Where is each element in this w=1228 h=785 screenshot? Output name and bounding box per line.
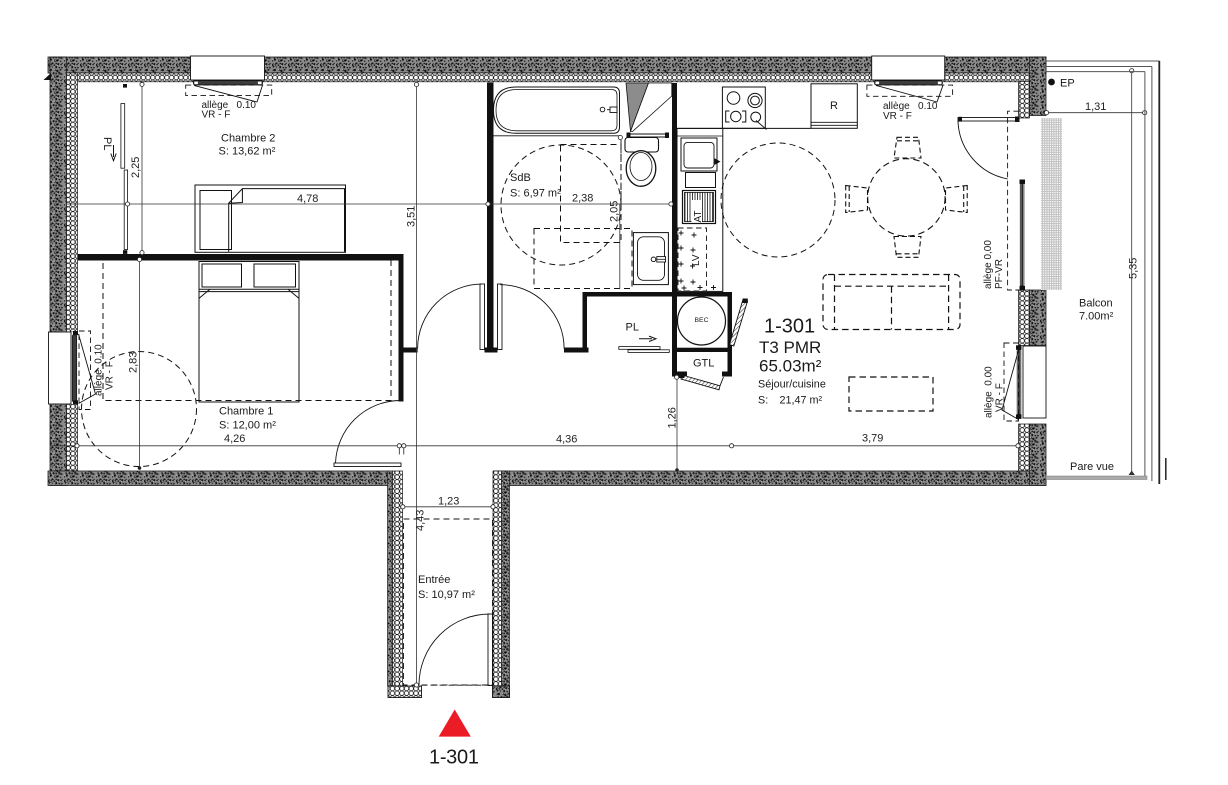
svg-text:2,25: 2,25 — [130, 157, 142, 178]
svg-text:Entrée: Entrée — [418, 574, 450, 586]
svg-text:3,51: 3,51 — [406, 206, 418, 227]
svg-text:1,23: 1,23 — [438, 496, 459, 508]
svg-text:5,35: 5,35 — [1128, 258, 1140, 279]
svg-text:PL: PL — [626, 322, 639, 334]
svg-text:allège 0.00: allège 0.00 — [984, 366, 995, 418]
svg-text:S: 6,97 m²: S: 6,97 m² — [510, 188, 561, 200]
svg-text:S:: S: — [758, 395, 768, 407]
svg-text:Balcon: Balcon — [1079, 298, 1113, 310]
svg-text:S: 10,97 m²: S: 10,97 m² — [418, 589, 475, 601]
svg-text:65.03m²: 65.03m² — [759, 357, 822, 376]
svg-text:VR - F: VR - F — [105, 361, 116, 390]
svg-text:2,05: 2,05 — [609, 201, 621, 222]
svg-text:S: 12,00 m²: S: 12,00 m² — [219, 420, 276, 432]
svg-text:AT: AT — [693, 210, 704, 222]
svg-text:R: R — [830, 100, 838, 112]
svg-text:1,26: 1,26 — [667, 407, 679, 428]
svg-text:2,83: 2,83 — [128, 352, 140, 373]
svg-text:VR - F: VR - F — [995, 383, 1006, 412]
svg-text:T3 PMR: T3 PMR — [759, 338, 821, 357]
svg-text:Chambre 1: Chambre 1 — [219, 406, 273, 418]
svg-text:Séjour/cuisine: Séjour/cuisine — [758, 379, 826, 391]
svg-text:7.00m²: 7.00m² — [1079, 311, 1114, 323]
svg-text:2,38: 2,38 — [572, 193, 593, 205]
svg-text:allège 0,00: allège 0,00 — [983, 240, 994, 289]
svg-text:VR - F: VR - F — [883, 111, 912, 122]
svg-text:PF-VR: PF-VR — [994, 259, 1005, 289]
svg-text:VR - F: VR - F — [202, 110, 231, 121]
svg-text:LV: LV — [691, 254, 702, 266]
svg-text:SdB: SdB — [510, 172, 531, 184]
svg-text:Chambre 2: Chambre 2 — [221, 133, 275, 145]
svg-text:4,43: 4,43 — [415, 510, 427, 531]
svg-text:1-301: 1-301 — [764, 316, 815, 338]
svg-text:4,78: 4,78 — [297, 193, 318, 205]
svg-text:BEC: BEC — [695, 317, 709, 324]
svg-text:3,79: 3,79 — [862, 433, 883, 445]
svg-text:GTL: GTL — [693, 358, 714, 370]
svg-text:Pare vue: Pare vue — [1070, 461, 1114, 473]
svg-text:PL: PL — [101, 137, 113, 150]
svg-text:21,47 m²: 21,47 m² — [780, 395, 823, 407]
svg-text:4,36: 4,36 — [556, 434, 577, 446]
svg-text:1-301: 1-301 — [429, 747, 479, 769]
svg-text:EP: EP — [1060, 78, 1075, 90]
svg-text:1,31: 1,31 — [1085, 101, 1106, 113]
svg-text:4,26: 4,26 — [224, 433, 245, 445]
svg-text:S: 13,62 m²: S: 13,62 m² — [219, 146, 276, 158]
